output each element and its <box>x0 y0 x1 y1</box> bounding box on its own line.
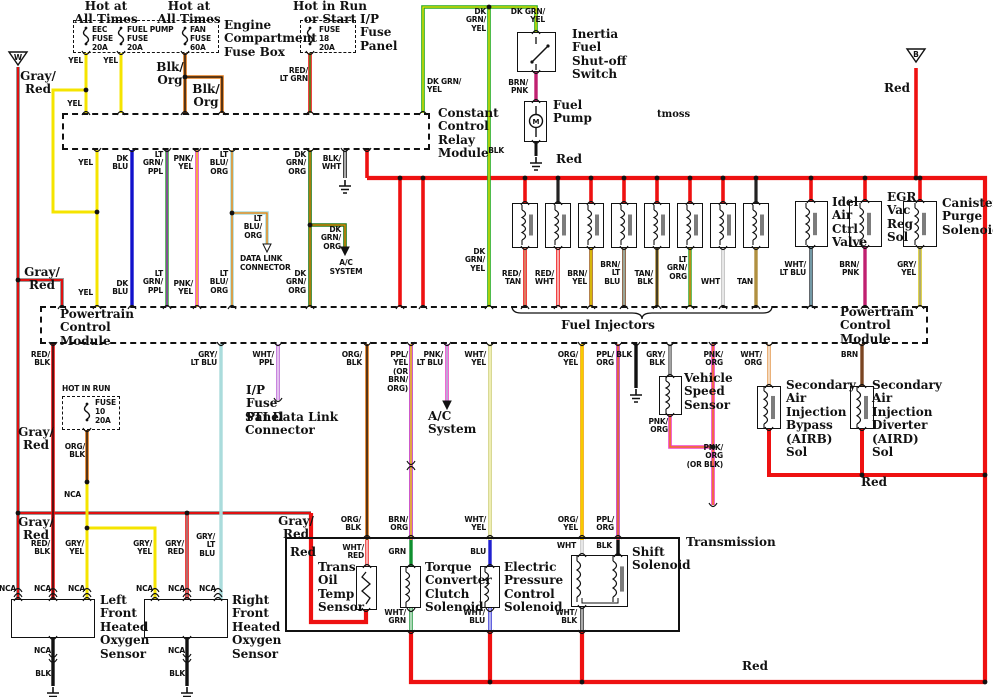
ground-icon <box>339 180 351 193</box>
junction-dot <box>589 176 594 181</box>
label-nca-128: NCA <box>168 647 185 655</box>
label-wht-102: WHT/ YEL <box>464 516 486 533</box>
label-trans-24: Trans Oil Temp Sensor <box>318 561 364 615</box>
junction-dot <box>918 176 923 181</box>
label-blk-39: Blk/ Org <box>192 83 219 110</box>
junction-dot <box>754 176 759 181</box>
label-gry-85: GRY/ LT BLU <box>191 351 217 368</box>
label-pnk-89: PNK/ LT BLU <box>417 351 443 368</box>
label-red-84: RED/ BLK <box>31 351 50 368</box>
junction-dot <box>85 480 90 485</box>
label-pnk-62: PNK/ YEL <box>173 280 193 297</box>
label-nca-114: NCA <box>64 491 81 499</box>
label-tmoss-8: tmoss <box>657 109 690 120</box>
label-wht-79: WHT <box>701 278 720 286</box>
fuel-injector-6 <box>677 203 703 248</box>
label-idel-9: Idel Air Ctrl Valve <box>832 196 867 250</box>
label-a-c-48: A/C SYSTEM <box>330 258 363 276</box>
label-nca-121: NCA <box>34 585 51 593</box>
label-hot-at-0: Hot at All Times <box>74 0 137 27</box>
fuel-injector-3 <box>578 203 604 248</box>
label-fuel-6: Fuel Pump <box>553 99 592 126</box>
ground-icon <box>181 687 193 697</box>
label-dk-57: DK GRN/ ORG <box>286 151 306 176</box>
label-nca-122: NCA <box>68 585 85 593</box>
label-pnk-95: PNK/ ORG <box>703 351 723 368</box>
label-transmission-23: Transmission <box>686 536 776 549</box>
label-wht-96: WHT/ ORG <box>740 351 762 368</box>
vehicle-speed-sensor <box>659 376 682 415</box>
wiring-diagram: WBMHot at All TimesHot at All TimesEngin… <box>0 0 993 697</box>
junction-dot <box>95 210 100 215</box>
junction-dot <box>655 176 660 181</box>
label-pnk-99: PNK/ ORG (OR BLK) <box>687 444 723 469</box>
fuel-injector-4 <box>611 203 637 248</box>
left-front-heated-oxygen-sensor <box>11 599 95 638</box>
label-gry-83: GRY/ YEL <box>897 261 916 278</box>
label-nca-124: NCA <box>168 585 185 593</box>
constant-control-relay-module <box>62 113 430 150</box>
label-brn-82: BRN/ PNK <box>839 261 859 278</box>
airb-solenoid <box>757 386 781 429</box>
label-wht-110: WHT/ GRN <box>384 609 406 626</box>
label-torque-25: Torque Converter Clutch Solenoid <box>425 561 492 615</box>
label-dk-70: DK GRN/ YEL <box>465 248 485 273</box>
label-lt-56: LT BLU/ ORG <box>210 151 228 176</box>
junction-dot <box>721 176 726 181</box>
label-nca-120: NCA <box>0 585 16 593</box>
label-secondary-20: Secondary Air Injection Diverter (AIRD) … <box>872 379 942 460</box>
label-gry-118: GRY/ RED <box>165 540 184 557</box>
label-wht-86: WHT/ PPL <box>252 351 274 368</box>
label-lt-78: LT GRN/ ORG <box>667 256 687 281</box>
label-dk-67: DK GRN/ YEL <box>466 8 486 33</box>
label-brn-97: BRN <box>841 351 858 359</box>
junction-dot <box>230 211 235 216</box>
inertia-fuel-shutoff-switch <box>517 32 556 72</box>
label-red-37: Red <box>742 660 768 673</box>
label-yel-50: YEL <box>103 57 118 65</box>
label-nca-126: NCA <box>34 647 51 655</box>
label-red-36: Red <box>861 476 887 489</box>
fuel-injector-5 <box>644 203 670 248</box>
label-powertrain-14: Powertrain Control Module <box>840 306 914 346</box>
label-wht-108: WHT <box>557 542 576 550</box>
label-pnk-55: PNK/ YEL <box>173 155 193 172</box>
label-blk-93: BLK <box>616 351 632 359</box>
junction-dot <box>580 680 585 685</box>
fuel-injector-1 <box>512 203 538 248</box>
ground-icon <box>630 389 642 402</box>
label-brn-76: BRN/ LT BLU <box>600 261 620 286</box>
junction-dot <box>308 223 313 228</box>
label-grn-106: GRN <box>388 548 406 556</box>
flow-arrow-icon <box>263 244 271 252</box>
powertrain-control-module <box>40 306 928 344</box>
junction-dot <box>523 176 528 181</box>
label-org-113: ORG/ BLK <box>65 443 85 460</box>
label-org-103: ORG/ YEL <box>558 516 578 533</box>
label-dk-64: DK GRN/ ORG <box>286 270 306 295</box>
wire-red-bottom-bus <box>411 632 985 682</box>
junction-dot <box>85 526 90 531</box>
label-blk-129: BLK <box>169 670 185 678</box>
label-gry-94: GRY/ BLK <box>646 351 665 368</box>
idle-air-ctrl-valve <box>795 201 828 247</box>
label-dk-grn-69: DK GRN/ YEL <box>427 78 461 95</box>
label-brn-71: BRN/ PNK <box>508 79 528 96</box>
label-inertia-5: Inertia Fuel Shut-off Switch <box>572 28 627 82</box>
label-red-33: Red <box>884 82 910 95</box>
junction-dot <box>398 176 403 181</box>
label-nca-123: NCA <box>136 585 153 593</box>
label-wht-111: WHT/ BLU <box>463 609 485 626</box>
junction-dot <box>421 176 426 181</box>
label-gray-28: Gray/ Red <box>20 70 56 97</box>
label-red-115: RED/ BLK <box>31 540 50 557</box>
label-gray-29: Gray/ Red <box>24 266 60 293</box>
label-dk-60: DK BLU <box>112 280 128 297</box>
label-right-22: Right Front Heated Oxygen Sensor <box>232 594 281 661</box>
label-fan-42: FAN FUSE 60A <box>190 25 211 52</box>
fuel-injector-7 <box>710 203 736 248</box>
label-wht-105: WHT/ RED <box>342 544 364 561</box>
label-blk-109: BLK <box>596 542 612 550</box>
label-electric-26: Electric Pressure Control Solenoid <box>504 561 563 615</box>
label-sti-data-link-16: STI Data Link Connector <box>245 411 338 438</box>
label-yel-49: YEL <box>68 57 83 65</box>
label-gry-119: GRY/ LT BLU <box>196 533 215 558</box>
ground-icon <box>530 157 542 170</box>
fuel-injector-2 <box>545 203 571 248</box>
right-front-heated-oxygen-sensor <box>144 599 228 638</box>
label-wht-90: WHT/ YEL <box>464 351 486 368</box>
label-ppl-104: PPL/ ORG <box>596 516 614 533</box>
label-data-link-47: DATA LINK CONNECTOR <box>240 254 291 272</box>
junction-dot <box>983 680 988 685</box>
label-org-100: ORG/ BLK <box>341 516 361 533</box>
label-red-73: RED/ TAN <box>502 270 521 287</box>
junction-dot <box>622 176 627 181</box>
label-powertrain-12: Powertrain Control Module <box>60 308 134 348</box>
label-eec-40: EEC FUSE 20A <box>92 25 113 52</box>
label-red-35: Red <box>290 546 316 559</box>
label-i-p-4: I/P Fuse Panel <box>360 13 397 53</box>
label-yel-52: YEL <box>78 159 93 167</box>
junction-dot <box>185 511 190 516</box>
label-wht-112: WHT/ BLK <box>555 609 577 626</box>
label-lt-63: LT BLU/ ORG <box>210 270 228 295</box>
label-blu-107: BLU <box>470 548 486 556</box>
label-egr-10: EGR Vac Reg Sol <box>887 191 916 245</box>
label-gry-117: GRY/ YEL <box>133 540 152 557</box>
triangle-connector-letter: B <box>913 50 919 59</box>
label-shift-27: Shift Solenoid <box>632 546 691 573</box>
label-gray-30: Gray/ Red <box>18 426 54 453</box>
label-blk-38: Blk/ Org <box>156 61 183 88</box>
label-tan-80: TAN <box>737 278 753 286</box>
label-blk-127: BLK <box>35 670 51 678</box>
label-dk-66: DK GRN/ ORG <box>321 226 341 251</box>
label-red-74: RED/ WHT <box>535 270 554 287</box>
fuel-pump <box>524 101 547 142</box>
ground-icon <box>47 687 59 697</box>
label-org-87: ORG/ BLK <box>342 351 362 368</box>
label-vehicle-18: Vehicle Speed Sensor <box>684 372 733 412</box>
label-fuse-44: FUSE 10 20A <box>95 398 116 425</box>
junction-dot <box>556 176 561 181</box>
label-gry-116: GRY/ YEL <box>65 540 84 557</box>
label-brn-75: BRN/ YEL <box>567 270 587 287</box>
junction-dot <box>487 5 492 10</box>
junction-dot <box>488 680 493 685</box>
label-lt-61: LT GRN/ PPL <box>143 270 163 295</box>
junction-dot <box>983 473 988 478</box>
label-gray-32: Gray/ Red <box>278 515 314 542</box>
label-left-21: Left Front Heated Oxygen Sensor <box>100 594 149 661</box>
torque-converter-clutch-solenoid <box>400 566 421 608</box>
label-blk-72: BLK <box>488 147 504 155</box>
fuel-injector-8 <box>743 203 769 248</box>
label-fuse-43: FUSE 18 20A <box>319 25 340 52</box>
label-red-34: Red <box>556 153 582 166</box>
junction-dot <box>809 176 814 181</box>
triangle-connector-letter: W <box>14 53 23 62</box>
label-hot-at-1: Hot at All Times <box>157 0 220 27</box>
label-wht-81: WHT/ LT BLU <box>780 261 806 278</box>
junction-dot <box>84 88 89 93</box>
label-yel-59: YEL <box>78 289 93 297</box>
label-org-91: ORG/ YEL <box>558 351 578 368</box>
label-fuel-injectors-13: Fuel Injectors <box>561 319 655 332</box>
label-red-46: RED/ LT GRN <box>280 67 308 84</box>
label-blk-58: BLK/ WHT <box>322 155 341 172</box>
label-fuel-pump-41: FUEL PUMP FUSE 20A <box>127 25 173 52</box>
label-a-c-17: A/C System <box>428 410 476 437</box>
label-lt-65: LT BLU/ ORG <box>244 215 262 240</box>
label-hot-in-run-45: HOT IN RUN <box>62 384 110 393</box>
flow-arrow-icon <box>341 247 349 255</box>
label-hot-in-run-3: Hot in Run or Start <box>293 0 367 27</box>
label-ppl-88: PPL/ YEL (OR BRN/ ORG) <box>387 351 408 393</box>
label-brn-101: BRN/ ORG <box>388 516 408 533</box>
junction-dot <box>863 176 868 181</box>
label-secondary-19: Secondary Air Injection Bypass (AIRB) So… <box>786 379 856 460</box>
junction-dot <box>16 278 21 283</box>
label-lt-54: LT GRN/ PPL <box>143 151 163 176</box>
label-pnk-98: PNK/ ORG <box>648 418 668 435</box>
label-yel-51: YEL <box>67 100 82 108</box>
shift-solenoid <box>571 555 628 607</box>
label-canister-11: Canister Purge Solenoid <box>942 197 993 237</box>
label-nca-125: NCA <box>199 585 216 593</box>
label-tan-77: TAN/ BLK <box>634 270 653 287</box>
label-dk-53: DK BLU <box>112 155 128 172</box>
flow-arrow-icon <box>443 401 451 409</box>
junction-dot <box>688 176 693 181</box>
label-dk-grn-68: DK GRN/ YEL <box>511 8 545 25</box>
label-ppl-92: PPL/ ORG <box>596 351 614 368</box>
